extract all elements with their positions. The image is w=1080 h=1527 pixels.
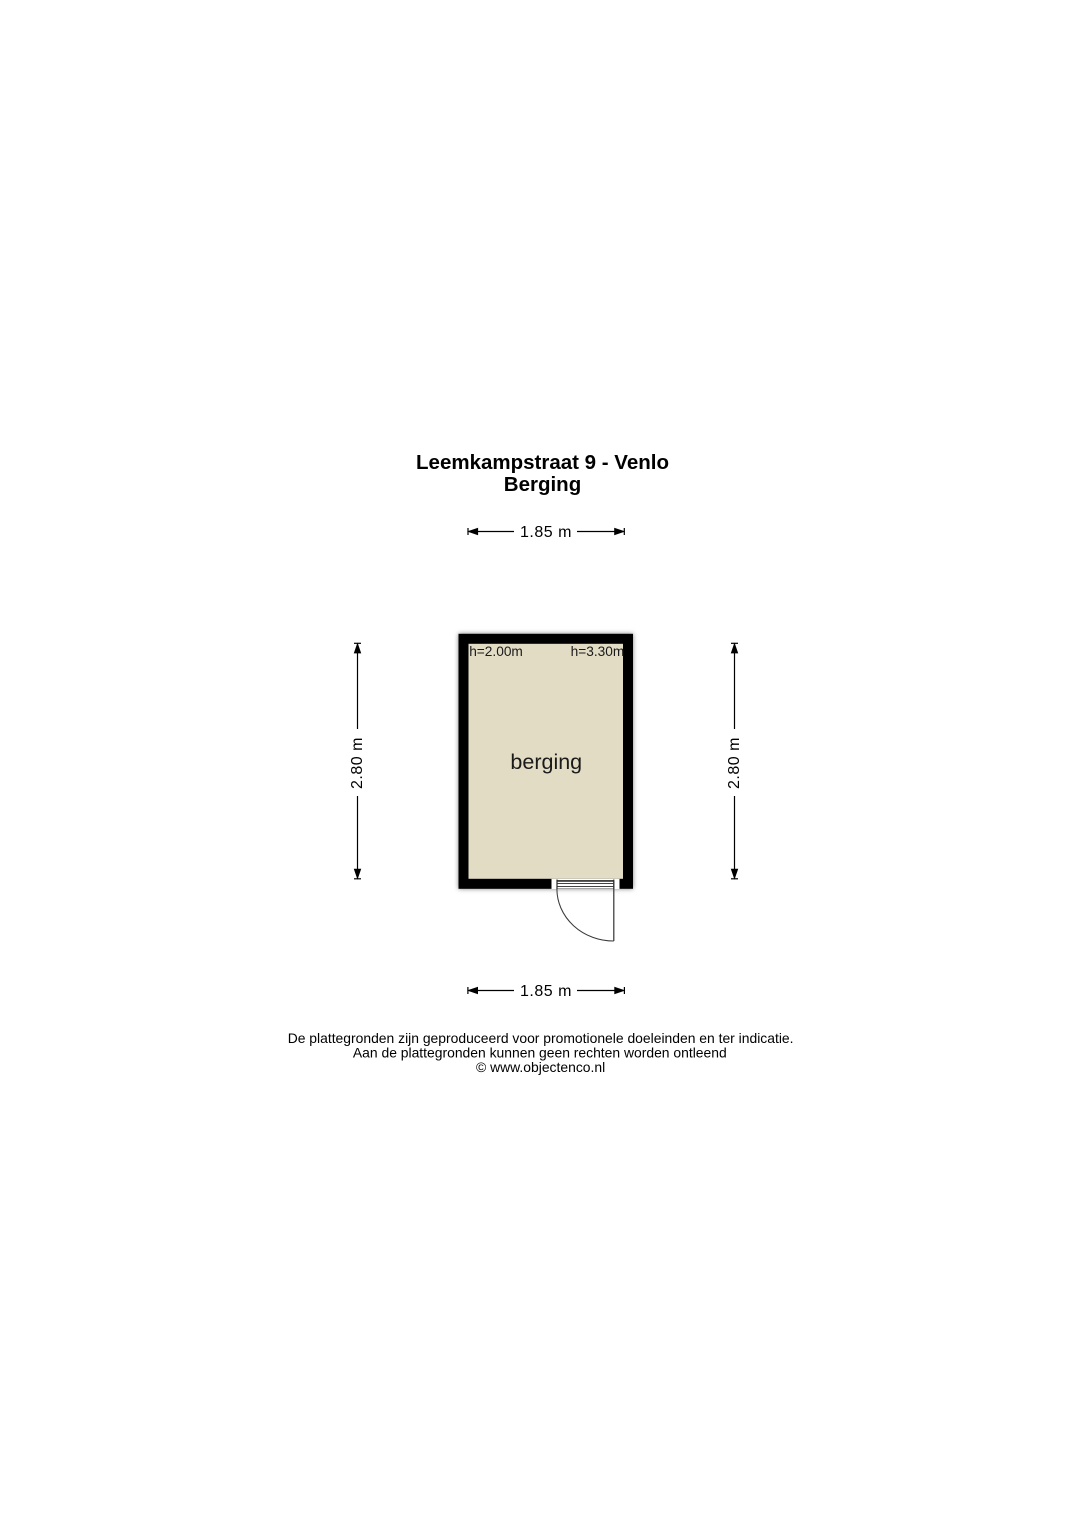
svg-text:2.80 m: 2.80 m	[726, 737, 743, 789]
svg-text:1.85 m: 1.85 m	[520, 524, 572, 541]
svg-text:h=3.30m: h=3.30m	[571, 644, 625, 659]
svg-text:1.85 m: 1.85 m	[520, 983, 572, 1000]
svg-text:© www.objectenco.nl: © www.objectenco.nl	[476, 1059, 605, 1075]
svg-text:Berging: Berging	[504, 473, 581, 496]
svg-text:berging: berging	[510, 750, 582, 774]
svg-text:h=2.00m: h=2.00m	[469, 644, 523, 659]
svg-text:2.80 m: 2.80 m	[349, 737, 366, 789]
svg-text:Leemkampstraat 9 - Venlo: Leemkampstraat 9 - Venlo	[416, 451, 669, 474]
